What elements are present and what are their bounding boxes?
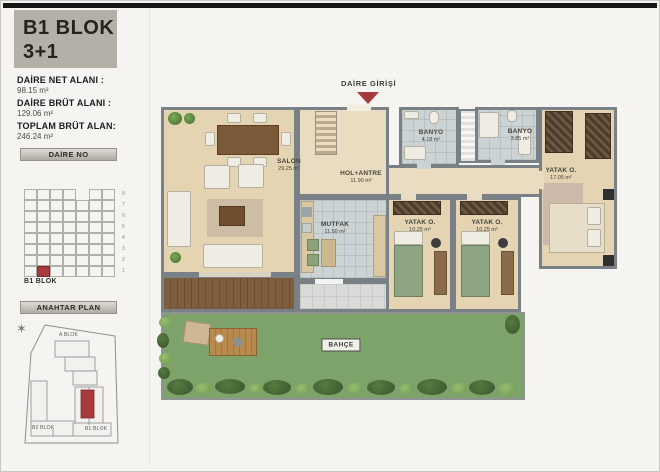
daire-no-cell [37, 222, 50, 233]
wardrobe [545, 111, 573, 153]
bush-icon [195, 383, 211, 394]
daire-no-cell [89, 211, 102, 222]
kitchen-chair [307, 239, 319, 251]
daire-no-grid [24, 189, 115, 277]
room-label-salon: SALON 29.25 m² [277, 158, 301, 172]
floorplan-page: B1 BLOK 3+1 DAİRE NET ALANI : 98.15 m² D… [0, 0, 660, 472]
daire-no-cell [76, 266, 89, 277]
banyo1-door-gap [417, 163, 431, 169]
bush-icon [157, 333, 169, 348]
daire-no-cell [89, 255, 102, 266]
coffee-table [219, 206, 245, 226]
salon-terrace-slider [199, 272, 271, 277]
floor-number: 3 [122, 244, 132, 255]
room-label-yatak-3: YATAK O. 17.05 m² [545, 167, 576, 181]
room-label-mutfak: MUTFAK 11.50 m² [321, 221, 349, 235]
entrance-label: DAİRE GİRİŞİ [341, 79, 396, 88]
daire-no-cell [63, 266, 76, 277]
floor-number: 6 [122, 211, 132, 222]
room-label-yatak-1: YATAK O. 10.25 m² [404, 219, 435, 233]
stat-total-gross-area-value: 246.24 m² [17, 132, 137, 141]
room-label-yatak-2: YATAK O. 10.25 m² [471, 219, 502, 233]
bed-pillow [461, 231, 490, 245]
bush-icon [167, 379, 193, 395]
chair-icon [498, 238, 508, 248]
daire-no-cell [37, 233, 50, 244]
kitchen-table [321, 239, 336, 267]
chair-icon [431, 238, 441, 248]
site-plan-drawing [15, 319, 127, 457]
stat-gross-area: DAİRE BRÜT ALANI : 129.06 m² [17, 98, 137, 118]
desk [501, 251, 514, 295]
keyplan-label-b1-blok: B1 BLOK [85, 426, 107, 432]
bush-icon [295, 384, 310, 394]
bush-icon [347, 383, 363, 394]
keyplan-highlight-unit [81, 390, 94, 418]
garden-mat [183, 320, 212, 345]
daire-no-cell [63, 244, 76, 255]
armchair [204, 165, 230, 189]
daire-no-cell [102, 266, 115, 277]
floor-number: 5 [122, 222, 132, 233]
bush-icon [505, 315, 520, 334]
daire-no-cell [76, 211, 89, 222]
toilet-icon [429, 111, 439, 124]
plant-icon [168, 112, 182, 125]
dining-chair [253, 113, 267, 123]
bed-pillow [587, 207, 601, 225]
bed-pillow [587, 229, 601, 247]
yatak3-door-gap [537, 171, 544, 189]
room-label-hol-antre: HOL+ANTRE 11.90 m² [340, 170, 382, 184]
bush-icon [469, 380, 495, 395]
bush-icon [249, 384, 263, 394]
nightstand [603, 189, 614, 200]
daire-no-cell [50, 222, 63, 233]
daire-no-cell [89, 233, 102, 244]
daire-no-cell [50, 266, 63, 277]
single-bed [461, 245, 490, 297]
plant-icon [184, 113, 195, 124]
kitchen-chair [307, 254, 319, 266]
stove-icon [302, 207, 312, 217]
kitchen-patio [297, 281, 389, 312]
sink-icon [404, 111, 419, 119]
daire-no-cell [24, 200, 37, 211]
daire-no-cell [37, 200, 50, 211]
floor-number: 7 [122, 200, 132, 211]
entry-door-gap [347, 104, 371, 111]
dining-chair [281, 132, 291, 146]
floor-number: 1 [122, 266, 132, 277]
bush-icon [367, 380, 395, 395]
yatak2-door-gap [467, 193, 482, 200]
bush-icon [158, 367, 170, 379]
anahtar-plan-header: ANAHTAR PLAN [20, 301, 117, 314]
nightstand [603, 255, 614, 266]
daire-no-cell [102, 200, 115, 211]
daire-no-cell [37, 255, 50, 266]
sofa [167, 191, 191, 247]
daire-no-cell [37, 266, 50, 277]
daire-no-cell [50, 233, 63, 244]
daire-no-cell [63, 233, 76, 244]
dining-chair [227, 113, 241, 123]
daire-no-cell [76, 255, 89, 266]
room-label-banyo-1: BANYO 4.18 m² [419, 129, 443, 143]
block-title-line2: 3+1 [23, 40, 117, 64]
daire-no-cell [63, 211, 76, 222]
stairs-hatch [315, 111, 337, 155]
daire-no-cell [89, 200, 102, 211]
room-label-banyo-2: BANYO 3.85 m² [508, 128, 532, 142]
floor-numbers: 87654321 [122, 189, 132, 277]
daire-no-cell [89, 266, 102, 277]
daire-no-cell [76, 222, 89, 233]
stat-gross-area-value: 129.06 m² [17, 109, 137, 118]
wardrobe [460, 201, 508, 215]
daire-no-cell [24, 189, 37, 200]
daire-no-cell [24, 211, 37, 222]
bed-pillow [394, 231, 423, 245]
sink-icon [302, 223, 312, 233]
plant-icon [170, 252, 181, 263]
daire-no-block-label: B1 BLOK [24, 278, 57, 285]
daire-no-cell [37, 244, 50, 255]
bowl-icon [233, 337, 243, 347]
daire-no-cell [50, 211, 63, 222]
daire-no-cell [37, 211, 50, 222]
floor-number: 2 [122, 255, 132, 266]
stat-gross-area-label: DAİRE BRÜT ALANI : [17, 98, 137, 108]
bush-icon [498, 383, 516, 395]
daire-no-cell [102, 244, 115, 255]
sidebar-divider [149, 9, 150, 465]
entrance-arrow-icon [357, 92, 379, 104]
single-bed [394, 245, 423, 297]
stat-net-area-value: 98.15 m² [17, 86, 137, 95]
daire-no-cell [63, 200, 76, 211]
sofa [203, 244, 263, 268]
page-top-rule [3, 3, 657, 8]
terrace-deck [161, 275, 297, 312]
daire-no-cell [102, 233, 115, 244]
daire-no-cell [37, 189, 50, 200]
daire-no-cell [102, 255, 115, 266]
armchair [238, 164, 264, 188]
toilet-icon [507, 110, 517, 122]
block-title: B1 BLOK 3+1 [14, 10, 117, 68]
bush-icon [159, 353, 171, 364]
daire-no-cell [24, 222, 37, 233]
bathtub-icon [404, 146, 426, 160]
bush-icon [399, 384, 413, 394]
daire-no-cell [76, 233, 89, 244]
daire-no-cell [102, 222, 115, 233]
daire-no-cell [24, 255, 37, 266]
daire-no-cell [89, 189, 102, 200]
daire-no-cell [89, 244, 102, 255]
bush-icon [313, 379, 343, 395]
daire-no-cell [50, 189, 63, 200]
stat-net-area: DAİRE NET ALANI : 98.15 m² [17, 75, 137, 95]
daire-no-cell [76, 244, 89, 255]
daire-no-cell [76, 200, 89, 211]
floor-number: 4 [122, 233, 132, 244]
bush-icon [159, 317, 172, 328]
daire-no-header: DAİRE NO [20, 148, 117, 161]
daire-no-cell [102, 211, 115, 222]
bush-icon [451, 383, 467, 394]
stat-total-gross-area: TOPLAM BRÜT ALAN: 246.24 m² [17, 121, 137, 141]
plate-icon [215, 334, 224, 343]
daire-no-cell [24, 233, 37, 244]
wardrobe [393, 201, 441, 215]
bush-icon [417, 379, 447, 395]
kitchen-counter [373, 215, 386, 277]
daire-no-cell [63, 189, 76, 200]
dining-chair [205, 132, 215, 146]
patio-door-gap [315, 279, 343, 284]
wardrobe [585, 113, 611, 159]
banyo2-door-gap [491, 159, 505, 165]
daire-no-cell [50, 255, 63, 266]
bush-icon [263, 380, 291, 395]
daire-no-cell [102, 189, 115, 200]
daire-no-cell [50, 200, 63, 211]
keyplan-label-a-blok: A BLOK [59, 332, 78, 338]
block-title-line1: B1 BLOK [23, 16, 117, 40]
daire-no-cell [89, 222, 102, 233]
bush-icon [215, 379, 245, 394]
keyplan-label-b2-blok: B2 BLOK [32, 425, 54, 431]
shower-icon [479, 112, 499, 138]
yatak1-door-gap [401, 193, 416, 200]
daire-no-cell [24, 266, 37, 277]
daire-no-cell [63, 255, 76, 266]
desk [434, 251, 447, 295]
daire-no-cell [24, 244, 37, 255]
room-label-bahce: BAHÇE [321, 339, 360, 352]
floor-number: 8 [122, 189, 132, 200]
daire-no-cell [50, 244, 63, 255]
dining-table [217, 125, 279, 155]
daire-no-cell [63, 222, 76, 233]
stat-total-gross-area-label: TOPLAM BRÜT ALAN: [17, 121, 137, 131]
stat-net-area-label: DAİRE NET ALANI : [17, 75, 137, 85]
